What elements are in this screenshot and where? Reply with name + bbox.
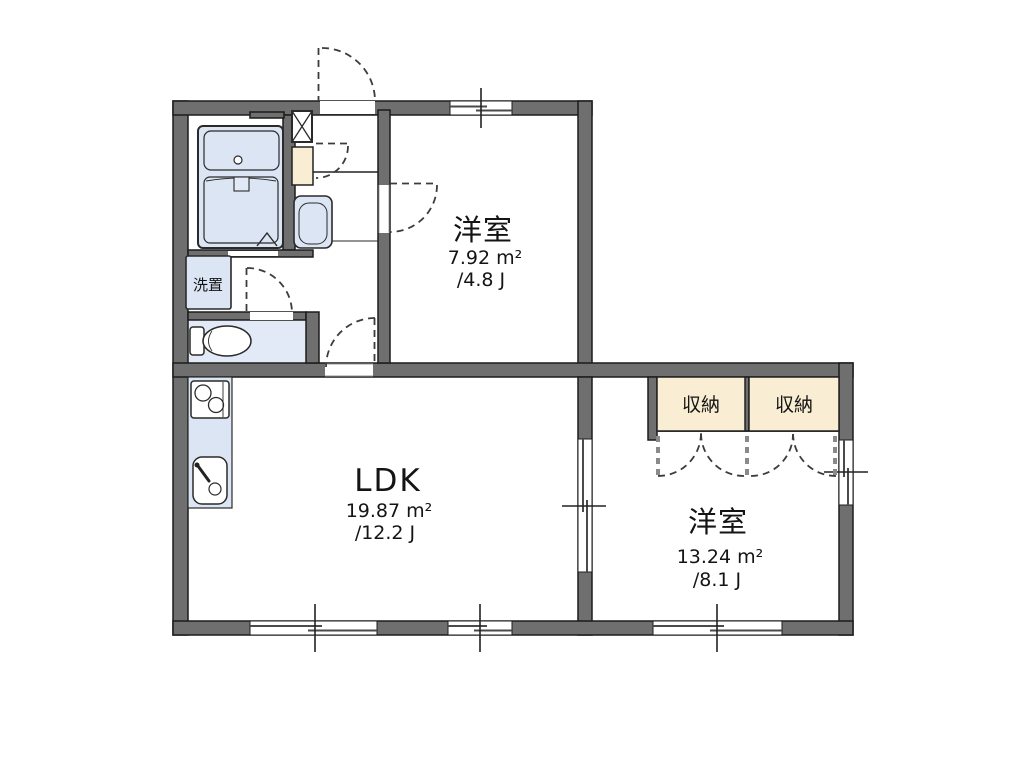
laundry-label: 洗置	[193, 276, 223, 294]
room-tatami: /8.1 J	[693, 569, 741, 591]
window-bedroom-right-bottom	[653, 604, 782, 652]
room-name: 洋室	[453, 213, 513, 247]
folding-door-arc-icon	[701, 433, 744, 476]
room-name: 洋室	[688, 505, 748, 539]
wall-segment	[306, 312, 319, 363]
window-top	[450, 88, 512, 128]
room-tatami: /4.8 J	[457, 269, 505, 291]
room-tatami: /12.2 J	[355, 522, 415, 544]
wall-segment	[578, 101, 592, 377]
entrance-gap	[320, 101, 375, 115]
wall-segment	[648, 377, 657, 440]
toilet-door-opening	[250, 312, 293, 320]
pipe-shaft	[292, 111, 312, 142]
floor-plan-drawing: 洗置 収納 収納	[0, 0, 1016, 772]
closet-label: 収納	[775, 394, 813, 416]
wall-segment	[173, 363, 853, 377]
toilet	[190, 326, 251, 356]
toilet-tank	[190, 327, 204, 355]
room-name: LDK	[354, 463, 421, 499]
door-gap	[228, 250, 278, 257]
door-swing-arc-icon	[322, 48, 375, 101]
toilet-icon	[203, 326, 251, 356]
kitchen	[188, 377, 232, 508]
vanity-counter-icon	[204, 131, 279, 170]
bedroom-top-door-opening	[378, 185, 390, 233]
door-gap	[325, 363, 373, 377]
window-bedroom-right-side	[824, 440, 868, 505]
bathroom-unit	[198, 126, 283, 248]
bathroom-door-opening	[228, 250, 278, 257]
door-swing-arc-icon	[326, 318, 375, 367]
door-gap	[378, 185, 390, 233]
sliding-door-ldk-bedroom	[562, 439, 606, 572]
room-area: 19.87 m²	[346, 500, 433, 522]
room-area: 7.92 m²	[448, 247, 522, 269]
wash-basin	[294, 196, 332, 248]
wall-segment	[378, 110, 390, 363]
closet-label: 収納	[682, 394, 720, 416]
window-ldk-left	[250, 604, 377, 652]
folding-door-arc-icon	[751, 434, 793, 476]
tub-step-icon	[234, 177, 249, 191]
door-swing-arc-icon	[390, 185, 437, 232]
wall-segment	[250, 112, 284, 118]
room-area: 13.24 m²	[677, 546, 764, 568]
faucet-base	[195, 463, 200, 468]
folding-door-arc-icon	[793, 434, 836, 476]
ldk-door-opening	[325, 363, 373, 377]
entrance-opening	[320, 101, 375, 115]
floor-plan: 洗置 収納 収納	[0, 0, 1016, 772]
drain-icon	[234, 156, 242, 164]
door-swing-arc-icon	[247, 268, 292, 313]
door-gap	[250, 312, 293, 320]
window-icon	[250, 621, 377, 635]
folding-door-arc-icon	[658, 433, 701, 476]
laundry-space: 洗置	[186, 256, 231, 309]
door-swing-arc-icon	[316, 146, 348, 178]
wash-basin-icon	[294, 196, 332, 248]
window-ldk-right	[448, 604, 512, 652]
shelf-icon	[292, 147, 313, 185]
